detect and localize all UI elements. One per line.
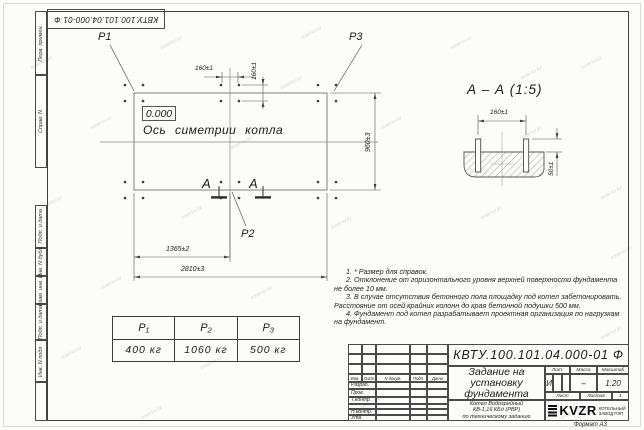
margin-label: Подп. и дата — [38, 209, 44, 243]
revision-cell — [376, 354, 410, 364]
tb-empty-cell — [410, 382, 427, 390]
kvzr-logo-caption: КОТЕЛЬНЫЙ ЗАВОД РЭП — [599, 406, 626, 416]
tb-empty-cell — [376, 415, 410, 421]
revision-cell — [410, 344, 427, 354]
margin-box-vzam-inv: Взам. инв. N — [35, 276, 47, 304]
note-3: 3. В случае отсутствия бетонного пола пл… — [334, 293, 626, 310]
revision-cell — [348, 354, 362, 364]
revision-cell — [362, 344, 376, 354]
tb-empty-cell — [427, 397, 448, 405]
loads-value-p2: 1060 кг — [175, 340, 237, 362]
tb-empty-cell — [410, 397, 427, 405]
loads-table-value-row: 400 кг 1060 кг 500 кг — [113, 340, 299, 362]
tb-row-label: Утв. — [348, 415, 376, 421]
dim-bolt-x-label: 160±1 — [195, 65, 213, 72]
tb-designation: КВТУ.100.101.04.000-01 Ф — [448, 344, 629, 366]
section-dim-height-label: 50±1 — [548, 162, 555, 176]
revision-cell — [362, 364, 376, 374]
revision-cell — [376, 344, 410, 354]
dim-total-length-label: 2810±3 — [181, 266, 204, 273]
tb-scale-label: Масштаб — [597, 366, 629, 374]
note-2: 2. Отклонение от горизонтального уровня … — [334, 276, 626, 293]
tb-mass-label: Масса — [570, 366, 597, 374]
loads-table: P₁ P₂ P₃ 400 кг 1060 кг 500 кг — [112, 316, 300, 362]
tb-row-label: Пров. — [348, 389, 376, 397]
margin-box-inv-dubl: Инв. N дубл. — [35, 248, 47, 276]
logo-caption-line: ЗАВОД РЭП — [599, 411, 626, 416]
tb-lit-label: Лит. — [545, 366, 570, 374]
revision-cell — [362, 354, 376, 364]
margin-box-empty — [35, 382, 47, 421]
tb-subtitle: Котел Водогрейный КВ-1,16 КБд (РВР) по т… — [448, 400, 545, 421]
kvzr-logo-icon — [548, 405, 557, 417]
margin-label: Справ. N — [38, 110, 44, 133]
doc-title-line: фундамента — [464, 389, 529, 400]
revision-cell — [427, 364, 448, 374]
load-p1-label: P1 — [98, 31, 111, 43]
tb-empty-cell — [410, 389, 427, 397]
doc-title-line: установку — [470, 378, 522, 389]
tb-scale-value: 1:20 — [597, 374, 629, 392]
tb-lit-cell-3 — [562, 374, 570, 392]
rotated-designation-stamp: КВТУ.100.101.04.000-01 Ф — [47, 9, 165, 29]
margin-box-inv-podl: Инв. N подл. — [35, 340, 47, 382]
drawing-sheet: kotel-kv.kzkotel-kv.kzkotel-kv.kzkotel-k… — [0, 0, 644, 430]
tb-row-label: Разраб. — [348, 382, 376, 390]
loads-value-p1: 400 кг — [113, 340, 175, 362]
tb-mass-value: – — [570, 374, 597, 392]
logo-caption-line: КОТЕЛЬНЫЙ — [599, 406, 626, 411]
tb-empty-cell — [427, 389, 448, 397]
margin-box-podp-data-1: Подп. и дата — [35, 205, 47, 248]
loads-header-p3: P₃ — [238, 317, 299, 339]
elevation-value: 0.000 — [146, 108, 172, 120]
revision-cell — [427, 344, 448, 354]
elevation-mark: 0.000 — [142, 106, 176, 121]
tb-empty-cell — [427, 382, 448, 390]
tb-logo-cell: KVZR КОТЕЛЬНЫЙ ЗАВОД РЭП — [545, 400, 629, 421]
section-dim-width-label: 160±1 — [490, 109, 508, 116]
section-view-title: А – А (1:5) — [467, 82, 543, 97]
margin-label: Подп. и дата — [38, 305, 44, 339]
notes-block: 1. * Размер для справок. 2. Отклонение о… — [334, 268, 626, 327]
loads-header-p2: P₂ — [175, 317, 237, 339]
stamp-text: КВТУ.100.101.04.000-01 Ф — [54, 15, 158, 24]
revision-cell — [348, 344, 362, 354]
doc-title-line: Задание на — [469, 367, 525, 378]
tb-empty-cell — [427, 415, 448, 421]
dim-bolt-y-label: 160±1 — [251, 62, 258, 80]
kvzr-logo-text: KVZR — [559, 403, 596, 418]
tb-empty-cell — [376, 382, 410, 390]
margin-label: Взам. инв. N — [38, 274, 44, 306]
tb-sheets-label: Листов — [580, 392, 612, 400]
tb-lit-cell-2 — [553, 374, 561, 392]
tb-doc-title: Задание на установку фундамента — [448, 366, 545, 400]
tb-empty-cell — [376, 397, 410, 405]
section-letter-left: А — [202, 176, 211, 191]
margin-label: Инв. N подл. — [38, 345, 44, 377]
symmetry-axis-label: Ось симетрии котла — [143, 123, 283, 137]
subtitle-line: по техническому заданию — [463, 414, 531, 420]
loads-table-header-row: P₁ P₂ P₃ — [113, 317, 299, 340]
loads-header-p1: P₁ — [113, 317, 175, 339]
section-letter-right: А — [249, 176, 258, 191]
revision-cell — [376, 364, 410, 374]
revision-cell — [410, 354, 427, 364]
dim-to-center-label: 1365±2 — [166, 246, 189, 253]
format-label: Формат А3 — [574, 422, 607, 428]
tb-empty-cell — [410, 415, 427, 421]
tb-empty-cell — [376, 389, 410, 397]
revision-cell — [427, 354, 448, 364]
note-4: 4. Фундамент под котел разрабатывает про… — [334, 310, 626, 327]
margin-box-podp-data-2: Подп. и дата — [35, 304, 47, 340]
revision-cell — [410, 364, 427, 374]
tb-sheets-value: 1 — [612, 392, 629, 400]
margin-label: Перв. примен. — [38, 25, 44, 62]
margin-box-sprav-n: Справ. N — [35, 75, 47, 168]
tb-lit-value: И — [545, 374, 553, 392]
tb-row-label: Т.контр. — [348, 397, 376, 405]
loads-value-p3: 500 кг — [238, 340, 299, 362]
load-p3-label: P3 — [349, 31, 362, 43]
revision-cell — [348, 364, 362, 374]
load-p2-label: P2 — [241, 228, 254, 240]
dim-total-width-label: 960±3 — [365, 133, 372, 152]
margin-box-perv-primen: Перв. примен. — [35, 11, 47, 75]
tb-sheet-label: Лист — [545, 392, 580, 400]
